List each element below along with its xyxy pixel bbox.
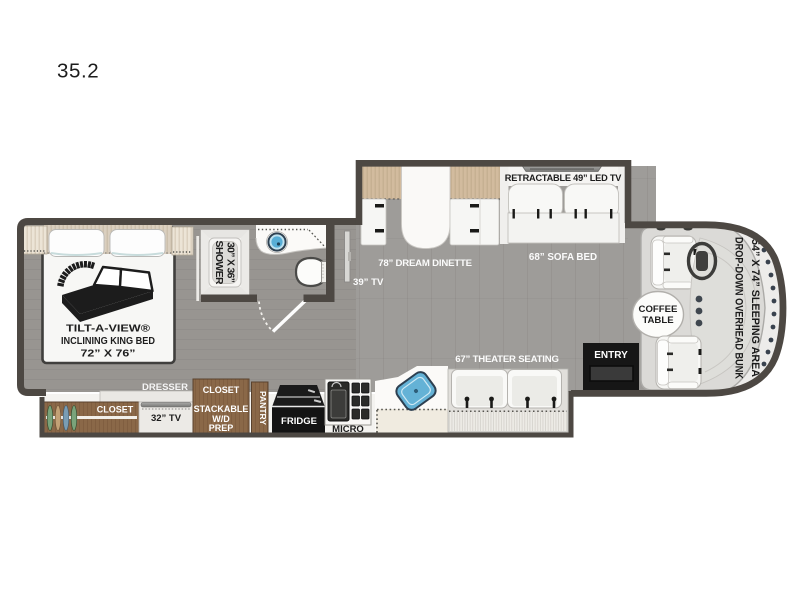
svg-text:CLOSET: CLOSET [97, 405, 134, 415]
svg-text:TABLE: TABLE [642, 315, 674, 326]
svg-text:39” TV: 39” TV [353, 277, 384, 288]
svg-text:ENTRY: ENTRY [594, 350, 628, 361]
svg-text:CLOSET: CLOSET [203, 385, 240, 395]
svg-text:PREP: PREP [209, 423, 234, 433]
svg-text:72” X 76”: 72” X 76” [81, 349, 136, 360]
svg-text:DRESSER: DRESSER [142, 382, 188, 393]
svg-text:STACKABLE: STACKABLE [194, 404, 249, 414]
svg-text:SHOWER: SHOWER [213, 241, 224, 285]
svg-text:PANTRY: PANTRY [258, 391, 268, 425]
svg-text:67” THEATER SEATING: 67” THEATER SEATING [455, 354, 559, 365]
svg-text:INCLINING KING BED: INCLINING KING BED [61, 336, 155, 347]
svg-text:COFFEE: COFFEE [639, 304, 679, 315]
svg-text:30” X 36”: 30” X 36” [225, 242, 236, 283]
svg-text:FRIDGE: FRIDGE [281, 416, 317, 427]
svg-text:TILT-A-VIEW®: TILT-A-VIEW® [66, 324, 151, 335]
svg-text:35.2: 35.2 [57, 60, 99, 83]
svg-text:68” SOFA BED: 68” SOFA BED [529, 252, 597, 263]
svg-text:54” X 74” SLEEPING AREA: 54” X 74” SLEEPING AREA [749, 239, 761, 377]
svg-text:DROP-DOWN OVERHEAD BUNK: DROP-DOWN OVERHEAD BUNK [733, 237, 745, 379]
svg-text:RETRACTABLE 49” LED TV: RETRACTABLE 49” LED TV [505, 173, 622, 183]
svg-text:78” DREAM DINETTE: 78” DREAM DINETTE [378, 258, 472, 269]
svg-text:32” TV: 32” TV [151, 413, 182, 424]
